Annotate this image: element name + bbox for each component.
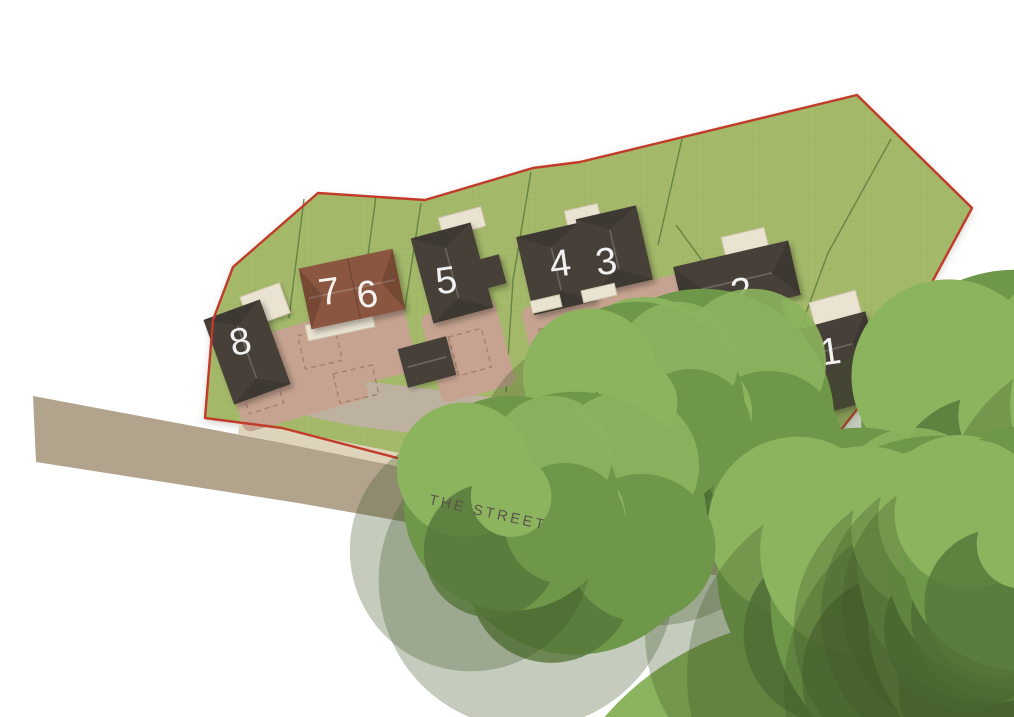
site-plan-canvas: BIN COLLECTION POINT xyxy=(0,0,1014,717)
site-plan-page: BIN COLLECTION POINT xyxy=(0,0,1014,717)
